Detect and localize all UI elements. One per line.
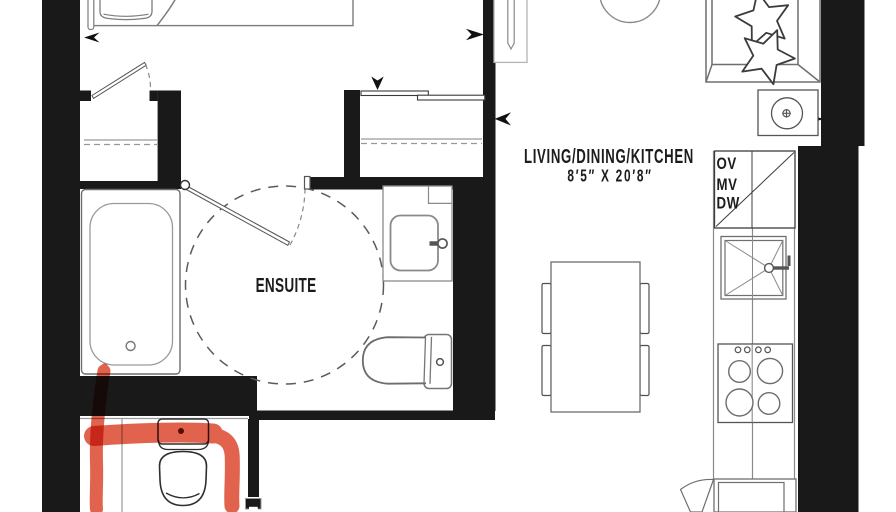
svg-text:MV: MV	[717, 175, 738, 194]
svg-text:8′5″ X 20′8″: 8′5″ X 20′8″	[567, 166, 652, 186]
svg-text:LIVING/DINING/KITCHEN: LIVING/DINING/KITCHEN	[524, 145, 694, 167]
svg-text:OV: OV	[717, 155, 737, 174]
svg-text:ENSUITE: ENSUITE	[256, 274, 317, 296]
svg-text:DW: DW	[717, 194, 740, 213]
